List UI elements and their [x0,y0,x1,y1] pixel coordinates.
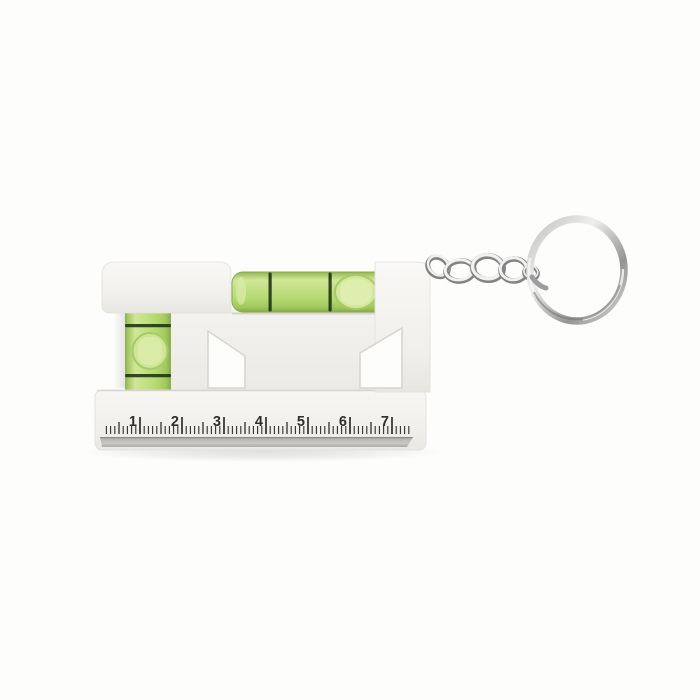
horizontal-vial-line-left [269,273,272,312]
vertical-vial-bubble-highlight [138,337,162,365]
ruler-tick [274,426,275,434]
ruler-number-7: 7 [381,414,389,430]
ruler-tick [144,426,145,434]
horizontal-vial-bubble-highlight [340,279,372,305]
ruler-tick [307,417,309,434]
ruler-tick [328,422,329,434]
ruler-number-2: 2 [171,414,179,430]
ruler-tick [207,426,208,434]
ruler-tick [160,422,161,434]
ruler-tick [236,426,237,434]
ruler-tick [110,426,111,434]
ruler-tick [253,426,254,434]
ruler-tick [223,417,225,434]
ruler-tick [118,422,119,434]
ruler-tick [295,426,296,434]
ruler-tick [190,426,191,434]
ruler-edge-strip [100,437,413,447]
ruler-tick [391,417,393,434]
ruler-tick [139,417,141,434]
ruler-tick [232,426,233,434]
ruler-number-4: 4 [255,414,263,430]
horizontal-vial-line-right [329,273,332,312]
ruler-tick [379,426,380,434]
ruler-tick [156,426,157,434]
ruler-number-3: 3 [213,414,221,430]
ruler-tick [123,426,124,434]
ruler-tick [270,426,271,434]
ruler-tick [333,426,334,434]
product-photo-scene: 1 2 3 4 5 6 7 [0,0,700,700]
ruler-tick [282,426,283,434]
ruler-tick [165,426,166,434]
ruler-number-5: 5 [297,414,305,430]
ruler-tick [106,426,107,434]
ruler-tick [194,426,195,434]
ruler-tick [349,417,351,434]
ruler-tick [324,426,325,434]
ruler-tick [202,422,203,434]
ruler-tick [320,426,321,434]
level-keyring-illustration: 1 2 3 4 5 6 7 [0,0,700,700]
ruler-tick [249,426,250,434]
level-body-top-left-block [102,262,231,313]
ruler-tick [181,417,183,434]
ruler-tick [286,422,287,434]
ruler-tick [354,426,355,434]
ruler-tick [211,426,212,434]
ruler-tick [228,426,229,434]
ruler-tick [404,426,405,434]
vertical-vial-line-bottom [125,374,171,377]
ruler-tick [169,426,170,434]
horizontal-vial-cap-highlight [236,277,246,305]
ruler-number-6: 6 [339,414,347,430]
ruler-tick [265,417,267,434]
ruler-tick [291,426,292,434]
ruler-tick [278,426,279,434]
ruler-tick [148,426,149,434]
ruler-tick [244,422,245,434]
ruler-tick [127,426,128,434]
keyring-split-ring [529,218,624,321]
ruler-number-1: 1 [129,414,137,430]
vertical-vial-line-top [125,324,171,327]
ruler-tick [312,426,313,434]
ruler-tick [366,426,367,434]
ruler-tick [186,426,187,434]
ruler-tick [370,422,371,434]
ruler-tick [240,426,241,434]
ruler-tick [316,426,317,434]
ruler-tick [396,426,397,434]
ruler-tick [114,426,115,434]
vertical-vial-cast-shadow [113,312,125,388]
ruler-tick [408,426,409,434]
ruler-tick [375,426,376,434]
ruler-tick [198,426,199,434]
ruler-tick [362,426,363,434]
ruler-tick [337,426,338,434]
keyring-chain [424,252,540,283]
ruler-tick [400,426,401,434]
vertical-vial [125,310,171,390]
ruler-tick [358,426,359,434]
horizontal-vial [232,272,387,312]
ruler-tick [152,426,153,434]
